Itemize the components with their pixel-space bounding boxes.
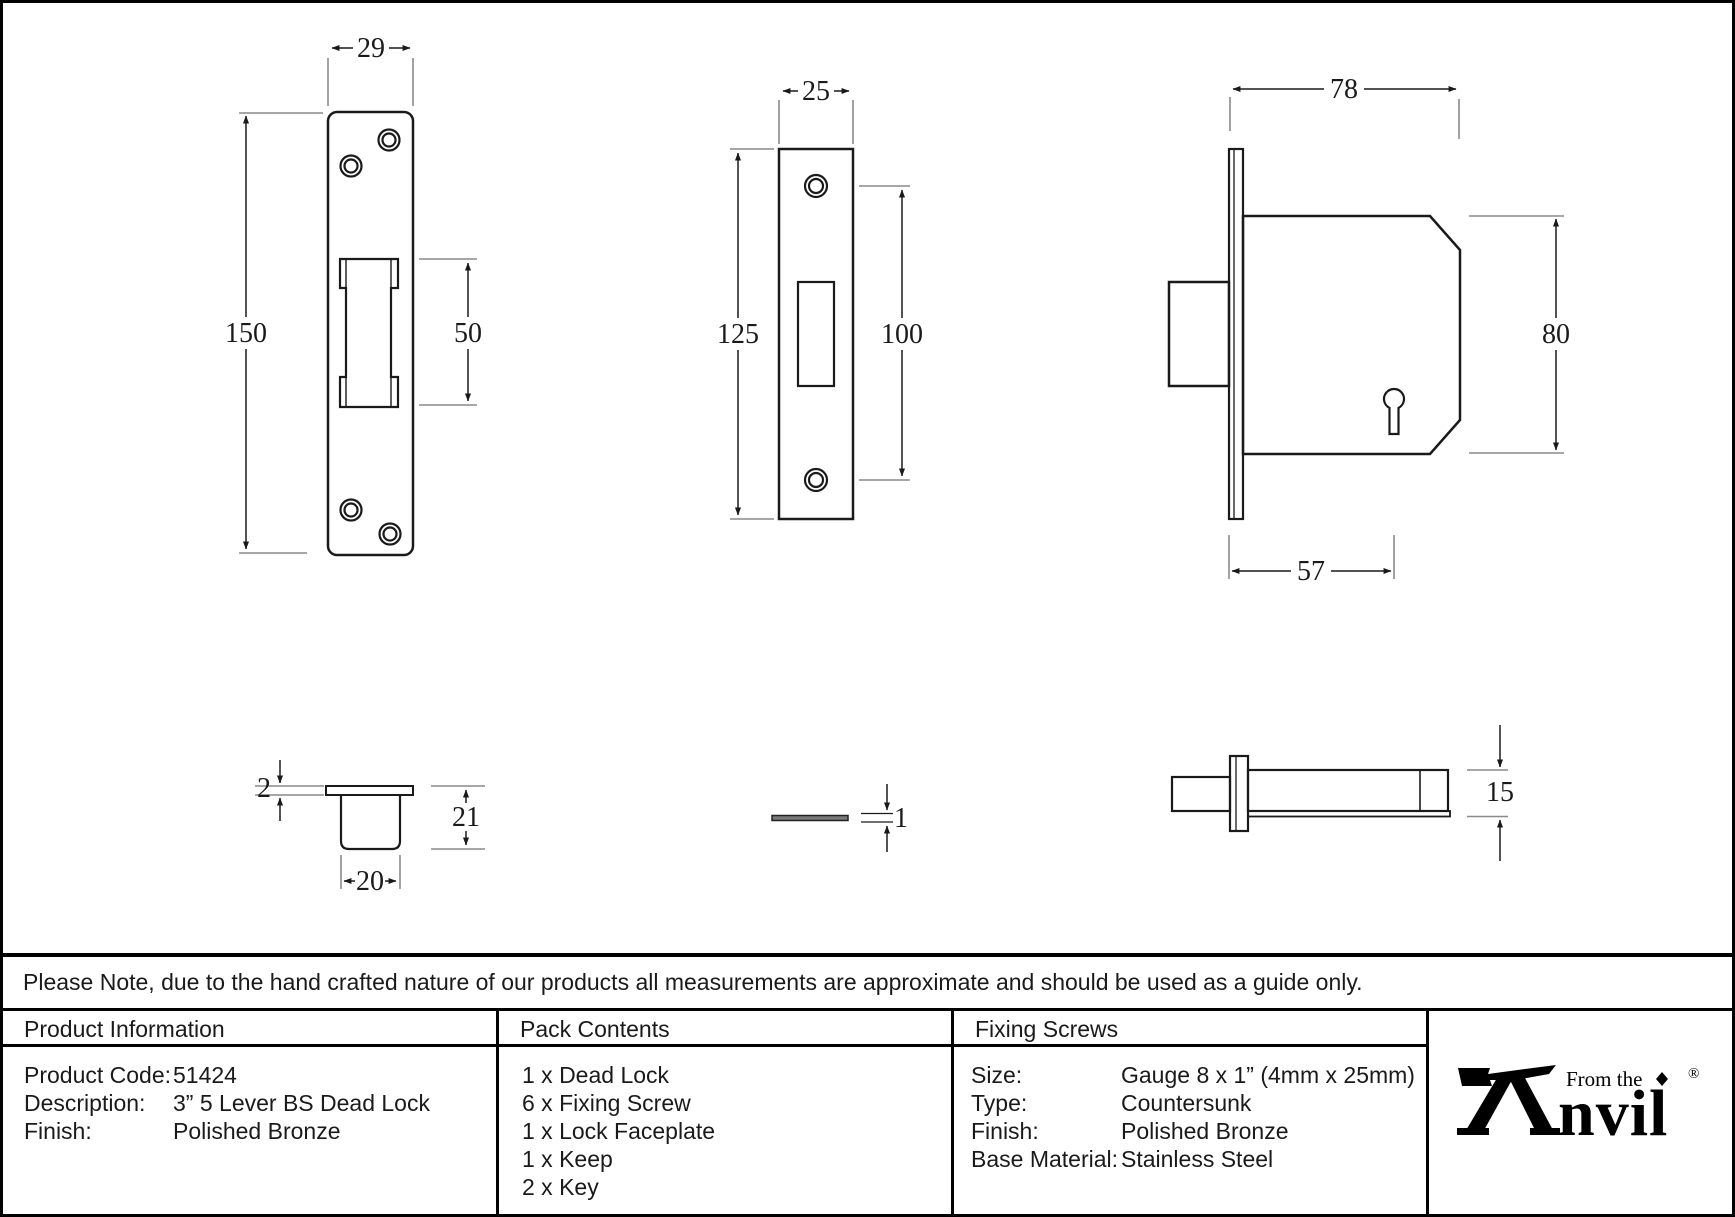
- lock-body-drawing: 78 80 57: [1169, 74, 1570, 587]
- screw-finish-value: Polished Bronze: [1121, 1117, 1426, 1145]
- product-information-header: Product Information: [3, 1011, 496, 1047]
- faceplate-side-bar: [772, 816, 848, 821]
- finish-value: Polished Bronze: [173, 1117, 496, 1145]
- dim-label-lock-thickness: 15: [1486, 777, 1514, 808]
- dim-label-faceplate-height: 125: [717, 319, 759, 350]
- fixing-screws-column: Fixing Screws Size: Gauge 8 x 1” (4mm x …: [951, 1011, 1426, 1214]
- faceplate-side-drawing: 1: [772, 784, 908, 852]
- spec-table: Product Information Product Code: 51424 …: [3, 1011, 1732, 1214]
- table-row: Finish: Polished Bronze: [954, 1117, 1426, 1145]
- pack-contents-header: Pack Contents: [499, 1011, 951, 1047]
- product-code-label: Product Code:: [3, 1061, 173, 1089]
- dim-label-faceplate-width: 25: [802, 76, 830, 107]
- description-value: 3” 5 Lever BS Dead Lock: [173, 1089, 496, 1117]
- measurement-note-text: Please Note, due to the hand crafted nat…: [23, 969, 1363, 996]
- dim-label-keep-width: 29: [357, 33, 385, 64]
- keep-side-box: [341, 795, 400, 849]
- screw-finish-label: Finish:: [954, 1117, 1121, 1145]
- brand-logo: From the nvil ®: [1452, 1058, 1710, 1159]
- faceplate-front-drawing: 25 125 100: [717, 76, 923, 519]
- screw-material-label: Base Material:: [954, 1145, 1121, 1173]
- dim-label-keep-box-width: 20: [356, 866, 384, 897]
- dim-label-keep-depth: 21: [452, 802, 480, 833]
- faceplate-bolt-slot: [798, 282, 834, 386]
- list-item: 1 x Lock Faceplate: [499, 1117, 951, 1145]
- table-row: Finish: Polished Bronze: [3, 1117, 496, 1145]
- product-information-column: Product Information Product Code: 51424 …: [3, 1011, 496, 1214]
- dim-label-faceplate-thickness: 1: [894, 803, 908, 834]
- table-row: Size: Gauge 8 x 1” (4mm x 25mm): [954, 1061, 1426, 1089]
- screw-size-label: Size:: [954, 1061, 1121, 1089]
- keep-plate-outline: [328, 112, 413, 555]
- table-row: Base Material: Stainless Steel: [954, 1145, 1426, 1173]
- dim-label-lock-width: 78: [1330, 74, 1358, 105]
- list-item: 2 x Key: [499, 1173, 951, 1201]
- lock-side-case: [1248, 770, 1448, 811]
- anvil-icon: [1457, 1065, 1560, 1135]
- dim-label-keep-plate-thickness: 2: [257, 773, 271, 804]
- measurement-note: Please Note, due to the hand crafted nat…: [3, 953, 1732, 1011]
- lock-side-drawing: 15: [1172, 725, 1514, 861]
- faceplate-outline: [779, 149, 853, 519]
- list-item: 6 x Fixing Screw: [499, 1089, 951, 1117]
- table-row: Product Code: 51424: [3, 1061, 496, 1089]
- brand-logo-cell: From the nvil ®: [1426, 1011, 1732, 1214]
- pack-contents-column: Pack Contents 1 x Dead Lock 6 x Fixing S…: [496, 1011, 951, 1214]
- keep-side-drawing: 2 21 20: [255, 760, 485, 897]
- lock-case-outline: [1243, 216, 1460, 454]
- finish-label: Finish:: [3, 1117, 173, 1145]
- keyhole: [1384, 389, 1404, 434]
- spec-sheet: 29 150 50: [0, 0, 1735, 1217]
- lock-bolt: [1169, 282, 1229, 386]
- lock-faceplate-edge: [1229, 149, 1243, 519]
- from-the-anvil-logo: From the nvil ®: [1452, 1058, 1710, 1154]
- table-row: Type: Countersunk: [954, 1089, 1426, 1117]
- table-row: Description: 3” 5 Lever BS Dead Lock: [3, 1089, 496, 1117]
- keep-bolt-slot: [340, 259, 398, 407]
- registered-trademark-icon: ®: [1688, 1066, 1699, 1082]
- screw-material-value: Stainless Steel: [1121, 1145, 1426, 1173]
- lock-side-faceplate: [1230, 756, 1248, 831]
- description-label: Description:: [3, 1089, 173, 1117]
- fixing-screws-header: Fixing Screws: [954, 1011, 1426, 1047]
- product-code-value: 51424: [173, 1061, 496, 1089]
- dim-label-lock-height: 80: [1542, 319, 1570, 350]
- dim-label-keep-height: 150: [225, 318, 267, 349]
- screw-type-label: Type:: [954, 1089, 1121, 1117]
- list-item: 1 x Dead Lock: [499, 1061, 951, 1089]
- logo-brand-text: nvil: [1558, 1077, 1668, 1150]
- screw-type-value: Countersunk: [1121, 1089, 1426, 1117]
- keep-front-drawing: 29 150 50: [225, 33, 482, 555]
- dim-label-faceplate-hole-spacing: 100: [881, 319, 923, 350]
- screw-size-value: Gauge 8 x 1” (4mm x 25mm): [1121, 1061, 1426, 1089]
- dim-label-lock-backset: 57: [1297, 556, 1325, 587]
- list-item: 1 x Keep: [499, 1145, 951, 1173]
- keep-slot-inner-lines: [346, 259, 391, 407]
- lock-side-base-strip: [1248, 811, 1450, 817]
- keep-side-plate: [326, 786, 413, 795]
- dim-label-keep-slot-height: 50: [454, 318, 482, 349]
- lock-side-bolt: [1172, 777, 1230, 811]
- faceplate-screw-holes: [805, 175, 827, 491]
- technical-drawings: 29 150 50: [3, 3, 1732, 951]
